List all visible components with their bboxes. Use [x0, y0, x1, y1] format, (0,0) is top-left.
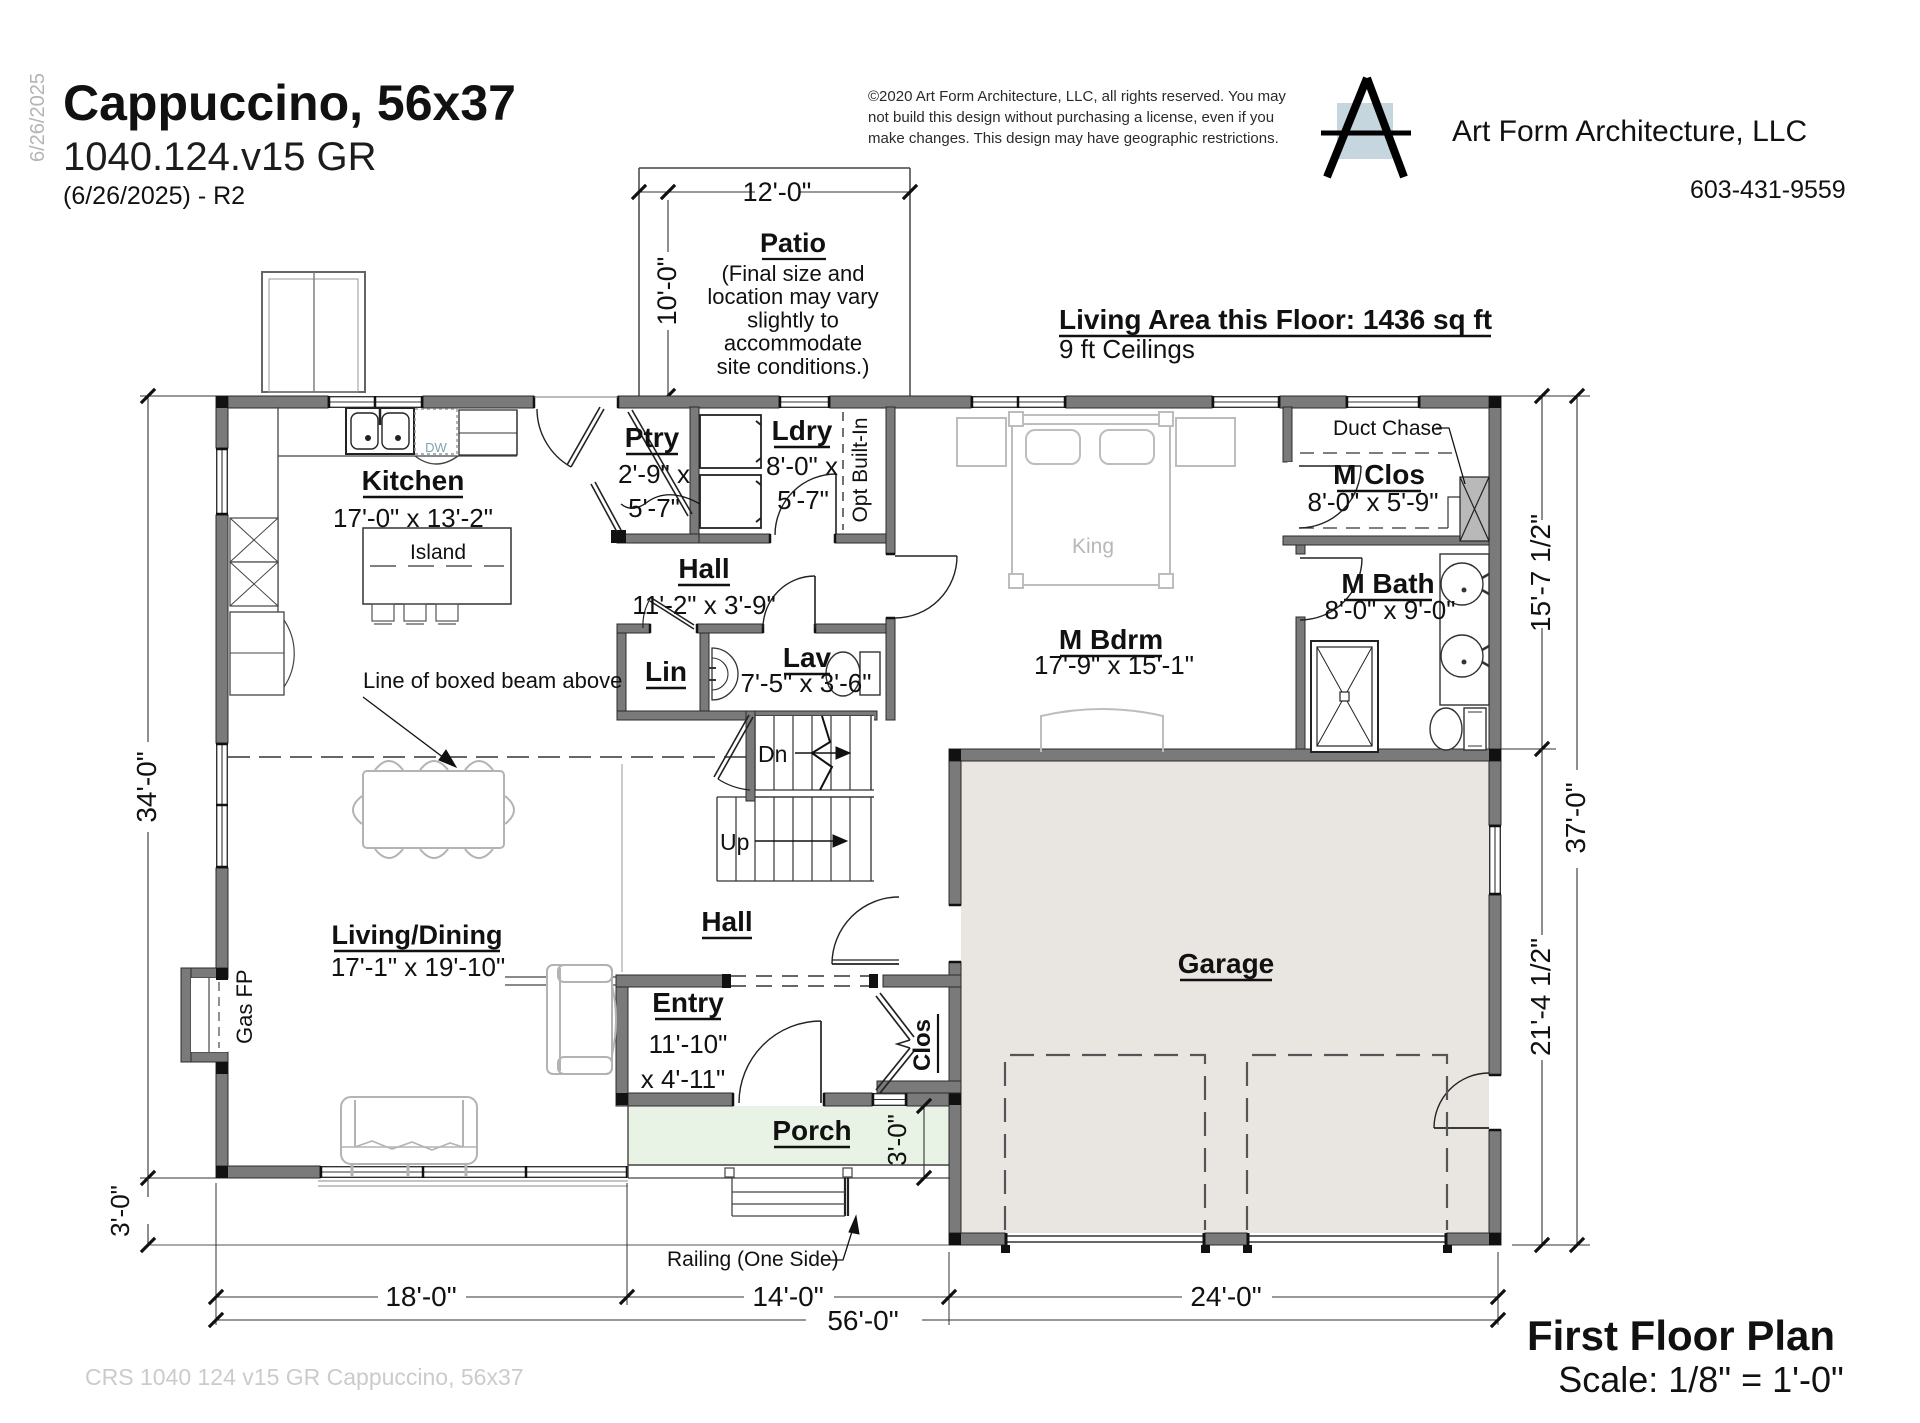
- svg-text:Clos: Clos: [909, 1019, 936, 1071]
- svg-text:Living Area this Floor: 1436 s: Living Area this Floor: 1436 sq ft: [1059, 304, 1492, 335]
- svg-text:CRS 1040 124 v15 GR Cappuccino: CRS 1040 124 v15 GR Cappuccino, 56x37: [85, 1364, 524, 1390]
- svg-text:Dn: Dn: [758, 741, 787, 767]
- svg-text:Lin: Lin: [645, 656, 687, 687]
- svg-text:Entry: Entry: [652, 987, 724, 1018]
- svg-text:Ldry: Ldry: [772, 415, 833, 446]
- svg-text:24'-0": 24'-0": [1190, 1281, 1261, 1312]
- svg-text:Opt Built-In: Opt Built-In: [849, 417, 872, 522]
- svg-text:Porch: Porch: [772, 1115, 851, 1146]
- svg-text:Cappuccino, 56x37: Cappuccino, 56x37: [63, 75, 516, 131]
- svg-text:34'-0": 34'-0": [131, 751, 162, 822]
- svg-text:17'-0" x 13'-2": 17'-0" x 13'-2": [333, 503, 493, 533]
- svg-text:Railing (One Side): Railing (One Side): [667, 1248, 839, 1271]
- svg-text:3'-0": 3'-0": [105, 1185, 135, 1237]
- svg-text:location may vary: location may vary: [707, 284, 878, 309]
- svg-text:©2020 Art Form Architecture, L: ©2020 Art Form Architecture, LLC, all ri…: [868, 88, 1286, 105]
- svg-text:8'-0" x: 8'-0" x: [766, 451, 838, 481]
- svg-text:Scale: 1/8" = 1'-0": Scale: 1/8" = 1'-0": [1558, 1359, 1844, 1400]
- svg-text:14'-0": 14'-0": [752, 1281, 823, 1312]
- svg-text:Hall: Hall: [701, 906, 752, 937]
- svg-text:make changes. This design may: make changes. This design may have geogr…: [868, 130, 1279, 147]
- svg-text:slightly to: slightly to: [747, 307, 839, 332]
- svg-text:7'-5" x 3'-6": 7'-5" x 3'-6": [741, 668, 872, 698]
- svg-text:21'-4 1/2": 21'-4 1/2": [1525, 938, 1556, 1056]
- svg-text:17'-1" x 19'-10": 17'-1" x 19'-10": [331, 952, 505, 982]
- svg-text:10'-0": 10'-0": [652, 257, 682, 326]
- svg-text:11'-2" x 3'-9": 11'-2" x 3'-9": [632, 590, 776, 620]
- svg-text:Garage: Garage: [1178, 948, 1275, 979]
- svg-text:Art Form Architecture, LLC: Art Form Architecture, LLC: [1452, 115, 1807, 148]
- svg-text:site conditions.): site conditions.): [717, 354, 870, 379]
- svg-text:Line of boxed beam above: Line of boxed beam above: [363, 668, 622, 693]
- svg-text:15'-7 1/2": 15'-7 1/2": [1525, 514, 1556, 632]
- svg-text:8'-0" x 5'-9": 8'-0" x 5'-9": [1308, 487, 1439, 517]
- svg-text:Ptry: Ptry: [625, 422, 680, 453]
- svg-text:Kitchen: Kitchen: [362, 465, 465, 496]
- svg-text:(6/26/2025) - R2: (6/26/2025) - R2: [63, 182, 245, 210]
- svg-text:5'-7": 5'-7": [628, 493, 680, 523]
- svg-text:9 ft Ceilings: 9 ft Ceilings: [1059, 334, 1195, 364]
- svg-text:3'-0": 3'-0": [882, 1114, 912, 1166]
- svg-text:Duct Chase: Duct Chase: [1333, 417, 1443, 440]
- svg-text:Living/Dining: Living/Dining: [332, 920, 503, 950]
- svg-text:King: King: [1072, 535, 1114, 558]
- svg-text:accommodate: accommodate: [724, 331, 862, 356]
- svg-text:Patio: Patio: [760, 228, 826, 258]
- svg-text:1040.124.v15 GR: 1040.124.v15 GR: [63, 135, 377, 179]
- svg-text:5'-7": 5'-7": [777, 485, 829, 515]
- svg-text:Up: Up: [720, 829, 749, 855]
- svg-text:6/26/2025: 6/26/2025: [27, 73, 49, 162]
- svg-text:8'-0" x 9'-0": 8'-0" x 9'-0": [1325, 595, 1456, 625]
- svg-text:12'-0": 12'-0": [743, 177, 812, 207]
- svg-text:603-431-9559: 603-431-9559: [1690, 176, 1846, 204]
- svg-text:M Clos: M Clos: [1333, 459, 1425, 490]
- svg-text:11'-10": 11'-10": [649, 1029, 728, 1059]
- svg-text:17'-9" x 15'-1": 17'-9" x 15'-1": [1034, 650, 1194, 680]
- svg-text:Gas FP: Gas FP: [232, 969, 257, 1044]
- svg-text:Island: Island: [410, 541, 466, 564]
- svg-text:Hall: Hall: [678, 553, 729, 584]
- svg-text:(Final size and: (Final size and: [721, 261, 864, 286]
- svg-text:56'-0": 56'-0": [827, 1305, 898, 1336]
- svg-text:not build this design without: not build this design without purchasing…: [868, 109, 1274, 126]
- svg-text:37'-0": 37'-0": [1560, 782, 1591, 853]
- svg-text:18'-0": 18'-0": [385, 1281, 456, 1312]
- svg-text:x 4'-11": x 4'-11": [641, 1064, 726, 1094]
- svg-text:First Floor Plan: First Floor Plan: [1527, 1312, 1835, 1359]
- svg-text:2'-9" x: 2'-9" x: [618, 459, 690, 489]
- svg-text:DW: DW: [425, 440, 447, 455]
